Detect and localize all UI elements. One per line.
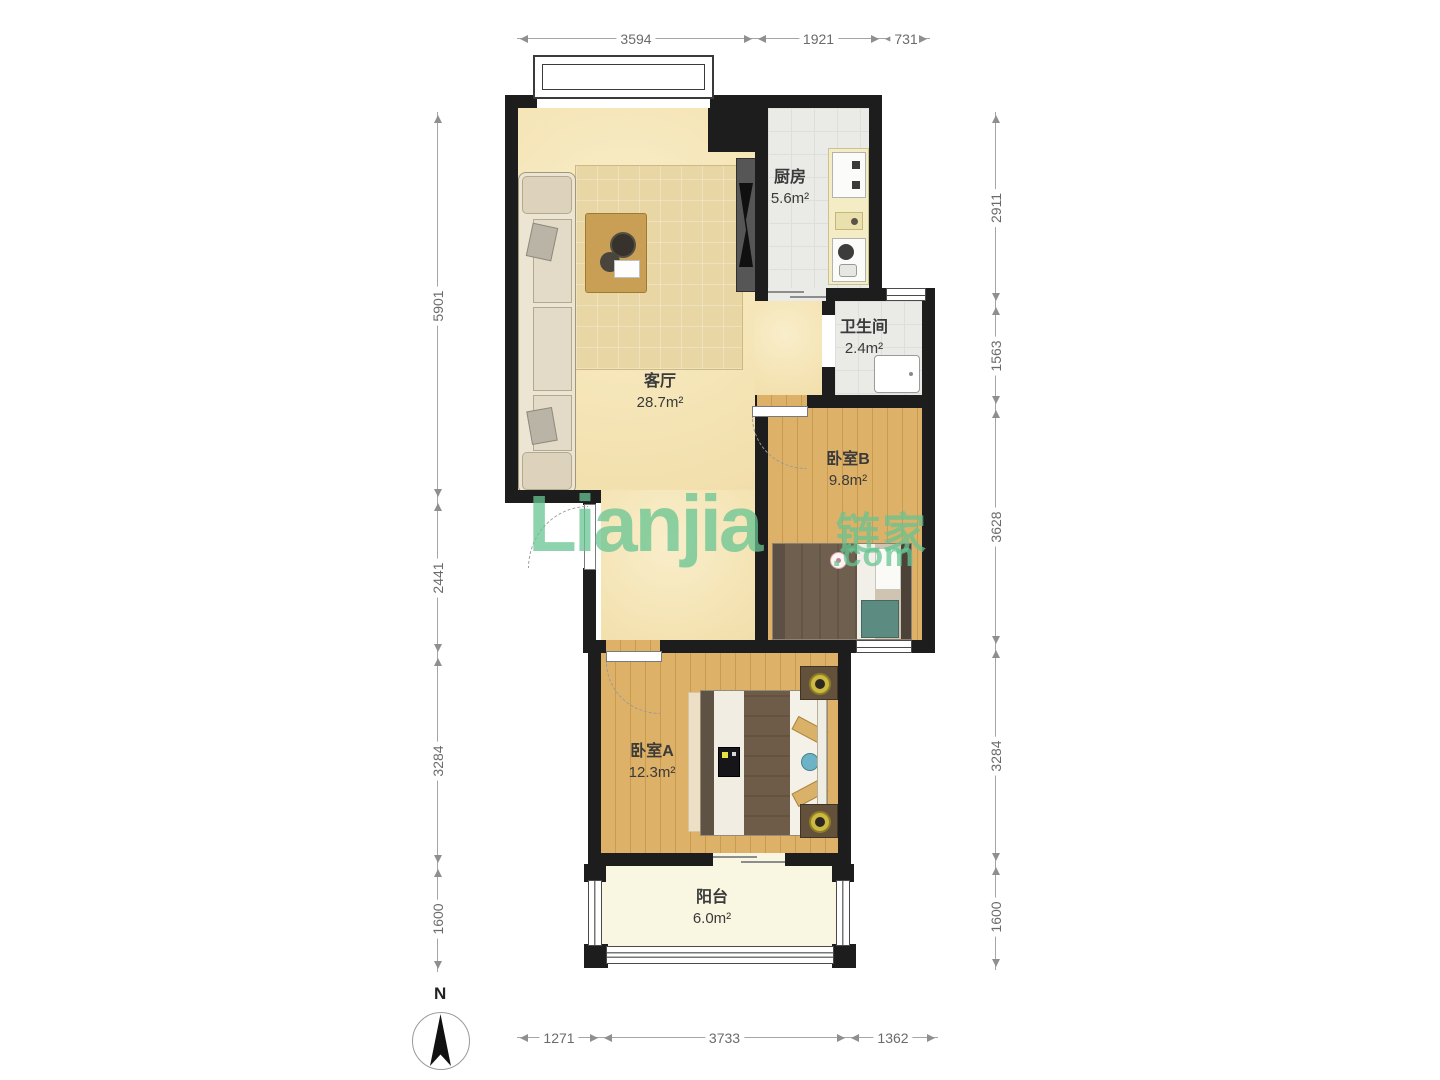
bed-a-blanket xyxy=(744,691,790,835)
dim-bottom-2: 3733 xyxy=(601,1037,848,1038)
room-area: 9.8m² xyxy=(793,471,903,491)
sofa xyxy=(518,172,576,494)
sink-bowl xyxy=(838,244,854,260)
balcony-door-opening xyxy=(713,853,785,866)
compass-north-label: N xyxy=(434,984,446,1004)
room-name: 卫生间 xyxy=(809,318,919,339)
room-name: 厨房 xyxy=(735,168,845,189)
dim-value: 3628 xyxy=(988,507,1004,546)
balcony-rail-right xyxy=(836,880,850,946)
bedroom-b-door-leaf xyxy=(752,406,808,417)
duct-pillar xyxy=(708,95,768,152)
room-label-bathroom: 卫生间 2.4m² xyxy=(809,318,919,358)
wall xyxy=(838,640,851,866)
lamp-center xyxy=(815,679,825,689)
table-book xyxy=(614,260,640,278)
wall xyxy=(922,288,935,653)
dim-top-1: 3594 xyxy=(517,38,755,39)
stove-burner xyxy=(852,181,860,189)
room-area: 12.3m² xyxy=(597,763,707,783)
balcony-corner-post xyxy=(584,944,608,968)
board-dot xyxy=(851,218,858,225)
room-label-bedroom-b: 卧室B 9.8m² xyxy=(793,450,903,490)
dim-value: 3284 xyxy=(430,741,446,780)
room-area: 28.7m² xyxy=(605,393,715,413)
sofa-cushion xyxy=(533,307,572,391)
dim-value: 2441 xyxy=(430,558,446,597)
room-area: 6.0m² xyxy=(657,909,767,929)
dim-right-1: 2911 xyxy=(995,112,996,304)
bay-window-inner xyxy=(542,64,705,90)
dim-left-4: 1600 xyxy=(437,866,438,972)
dim-right-2: 1563 xyxy=(995,304,996,407)
stove-burner xyxy=(852,161,860,169)
kitchen-sliding-door xyxy=(768,291,804,293)
dim-value: 731 xyxy=(890,31,921,47)
dim-left-1: 5901 xyxy=(437,112,438,500)
room-name: 卧室A xyxy=(597,742,707,763)
dim-value: 1271 xyxy=(539,1030,578,1046)
sink-basin xyxy=(839,264,857,277)
balcony-corner-post xyxy=(832,944,856,968)
room-area: 2.4m² xyxy=(809,339,919,359)
balcony-sliding-door xyxy=(741,861,785,863)
coffee-table xyxy=(585,213,647,293)
kitchen-sink xyxy=(832,238,866,282)
dim-value: 1563 xyxy=(988,336,1004,375)
bathtub-drain xyxy=(909,372,913,376)
entry-door-arc xyxy=(528,506,588,568)
living-room-corridor-floor xyxy=(601,490,755,640)
bedroom-b-window xyxy=(856,640,912,653)
bay-window xyxy=(533,55,714,99)
sofa-pillow xyxy=(526,407,558,445)
room-label-balcony: 阳台 6.0m² xyxy=(657,888,767,928)
bed-b-headboard xyxy=(901,544,911,639)
bed-b-throw xyxy=(861,600,899,638)
room-label-kitchen: 厨房 5.6m² xyxy=(735,168,845,208)
room-name: 客厅 xyxy=(605,372,715,393)
lamp-center xyxy=(815,817,825,827)
dim-bottom-1: 1271 xyxy=(517,1037,601,1038)
sofa-armrest-top xyxy=(522,176,572,214)
dim-left-3: 3284 xyxy=(437,655,438,866)
dim-top-2: 1921 xyxy=(755,38,882,39)
dim-value: 1362 xyxy=(873,1030,912,1046)
floor-plan-canvas: 客厅 28.7m² 厨房 5.6m² 卫生间 2.4m² 卧室B 9.8m² 卧… xyxy=(0,0,1440,1080)
dim-value: 3733 xyxy=(705,1030,744,1046)
dim-value: 1600 xyxy=(988,897,1004,936)
dim-value: 3284 xyxy=(988,736,1004,775)
bed-b-pillow xyxy=(875,548,901,590)
bathtub xyxy=(874,355,920,393)
dim-value: 1600 xyxy=(430,899,446,938)
nightstand xyxy=(800,666,838,700)
balcony-sliding-door xyxy=(713,856,757,858)
kitchen-sliding-door xyxy=(790,296,826,298)
nightstand xyxy=(800,804,838,838)
wall xyxy=(505,490,601,503)
balcony-rail-left xyxy=(588,880,602,946)
room-name: 卧室B xyxy=(793,450,903,471)
sofa-armrest-bottom xyxy=(522,452,572,490)
room-label-bedroom-a: 卧室A 12.3m² xyxy=(597,742,707,782)
wall xyxy=(869,95,882,301)
dim-right-4: 3284 xyxy=(995,647,996,864)
bedroom-a-door-leaf xyxy=(606,651,662,662)
dim-right-5: 1600 xyxy=(995,864,996,970)
bed-b-footboard xyxy=(773,544,785,639)
dim-bottom-3: 1362 xyxy=(848,1037,938,1038)
dim-value: 3594 xyxy=(616,31,655,47)
room-area: 5.6m² xyxy=(735,189,845,209)
wall xyxy=(505,95,518,503)
dim-right-3: 3628 xyxy=(995,407,996,647)
room-label-living: 客厅 28.7m² xyxy=(605,372,715,412)
balcony-rail-bottom xyxy=(606,946,834,964)
kitchen-board xyxy=(835,212,863,230)
bathroom-window xyxy=(886,288,926,301)
dim-value: 2911 xyxy=(988,189,1004,227)
bed-a-tv xyxy=(718,747,740,777)
dim-value: 5901 xyxy=(430,286,446,325)
dim-left-2: 2441 xyxy=(437,500,438,655)
kitchen-door-opening xyxy=(768,288,826,301)
dim-top-3: 731 xyxy=(882,38,930,39)
room-name: 阳台 xyxy=(657,888,767,909)
bed-b-flower xyxy=(830,552,847,569)
dim-value: 1921 xyxy=(799,31,838,47)
